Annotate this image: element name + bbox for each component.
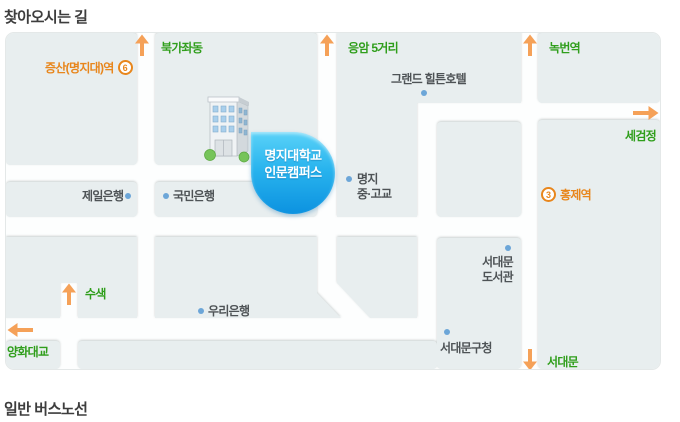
place-label-woori-bank: 우리은행: [208, 304, 249, 318]
station-jeungsan: 증산(명지대)역 6: [45, 60, 133, 75]
poi-dot: [125, 193, 131, 199]
place-label-line: 중·고교: [357, 187, 391, 201]
direction-label-bukgajwadong: 북가좌동: [161, 41, 202, 55]
section-title-bus-routes: 일반 버스노선: [4, 398, 87, 419]
city-block: [6, 33, 137, 165]
place-label-kookmin-bank: 국민은행: [173, 189, 214, 203]
arrow-left-icon: [7, 322, 34, 338]
city-block: [337, 237, 417, 318]
station-hongje: 3 홍제역: [541, 187, 591, 202]
poi-dot: [421, 90, 427, 96]
direction-label-yanghwadaegyo: 양화대교: [7, 345, 48, 359]
poi-dot: [444, 329, 450, 335]
building-icon: [203, 93, 255, 163]
page-title: 찾아오시는 길: [4, 6, 87, 27]
arrow-up-icon: [522, 34, 538, 57]
arrow-up-icon: [134, 34, 150, 57]
arrow-down-icon: [522, 348, 538, 370]
arrow-right-icon: [632, 105, 659, 121]
place-label-line: 명지: [357, 172, 378, 186]
direction-label-susaek: 수색: [85, 287, 106, 301]
place-label-line: 서대문: [482, 255, 513, 269]
poi-dot: [198, 308, 204, 314]
place-label-myongji-school: 명지 중·고교: [357, 172, 391, 202]
place-label-jeil-bank: 제일은행: [82, 189, 123, 203]
direction-label-eungam: 응암 5거리: [348, 41, 398, 55]
directions-map: 북가좌동 응암 5거리 녹번역 세검정 수색 양화대교 서대문 증산(명지대)역…: [5, 32, 661, 370]
direction-label-segeomjeong: 세검정: [625, 129, 656, 143]
campus-bubble: 명지대학교 인문캠퍼스: [251, 132, 335, 214]
campus-name-line2: 인문캠퍼스: [251, 164, 335, 181]
direction-label-nokbeon: 녹번역: [549, 41, 580, 55]
place-label-line: 도서관: [482, 270, 513, 284]
poi-dot: [346, 176, 352, 182]
subway-line-3-icon: 3: [541, 187, 556, 202]
poi-dot: [505, 245, 511, 251]
station-name: 증산(명지대)역: [45, 61, 114, 75]
place-label-hilton-hotel: 그랜드 힐튼호텔: [391, 72, 466, 86]
city-block: [78, 341, 437, 369]
place-label-gu-office: 서대문구청: [440, 341, 492, 355]
city-block: [437, 122, 521, 217]
place-label-seodaemun-library: 서대문 도서관: [482, 255, 513, 285]
city-block: [538, 120, 660, 369]
direction-label-seodaemun: 서대문: [547, 355, 578, 369]
campus-name-line1: 명지대학교: [251, 147, 335, 164]
poi-dot: [163, 193, 169, 199]
arrow-up-icon: [319, 34, 335, 57]
arrow-up-icon: [61, 283, 77, 306]
subway-line-6-icon: 6: [118, 60, 133, 75]
station-name: 홍제역: [560, 188, 591, 202]
